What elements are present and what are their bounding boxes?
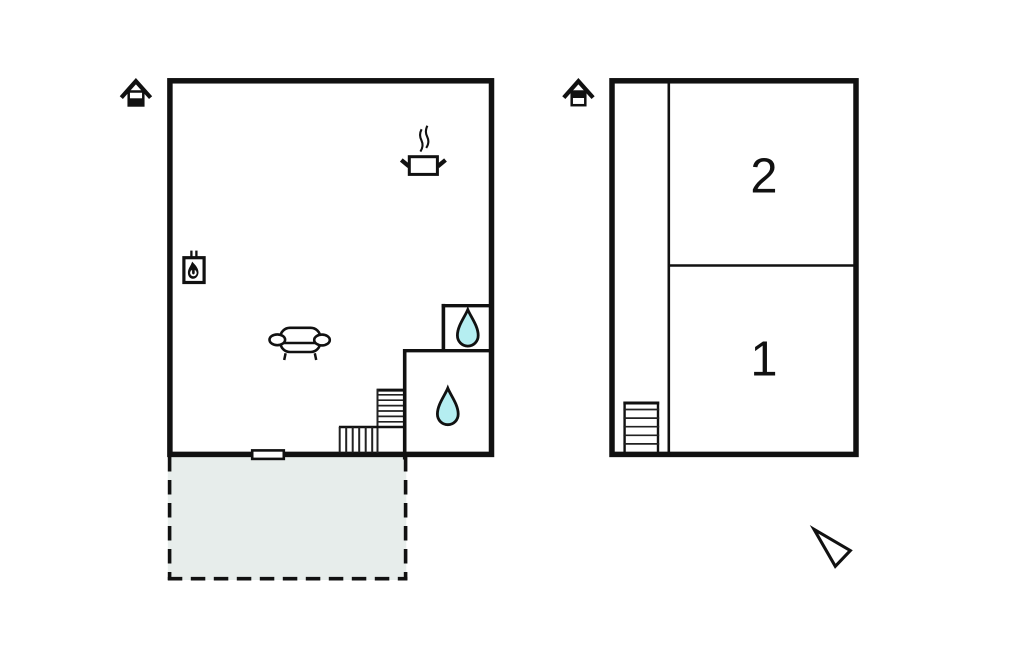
- svg-text:2: 2: [750, 149, 777, 203]
- svg-text:1: 1: [750, 333, 777, 387]
